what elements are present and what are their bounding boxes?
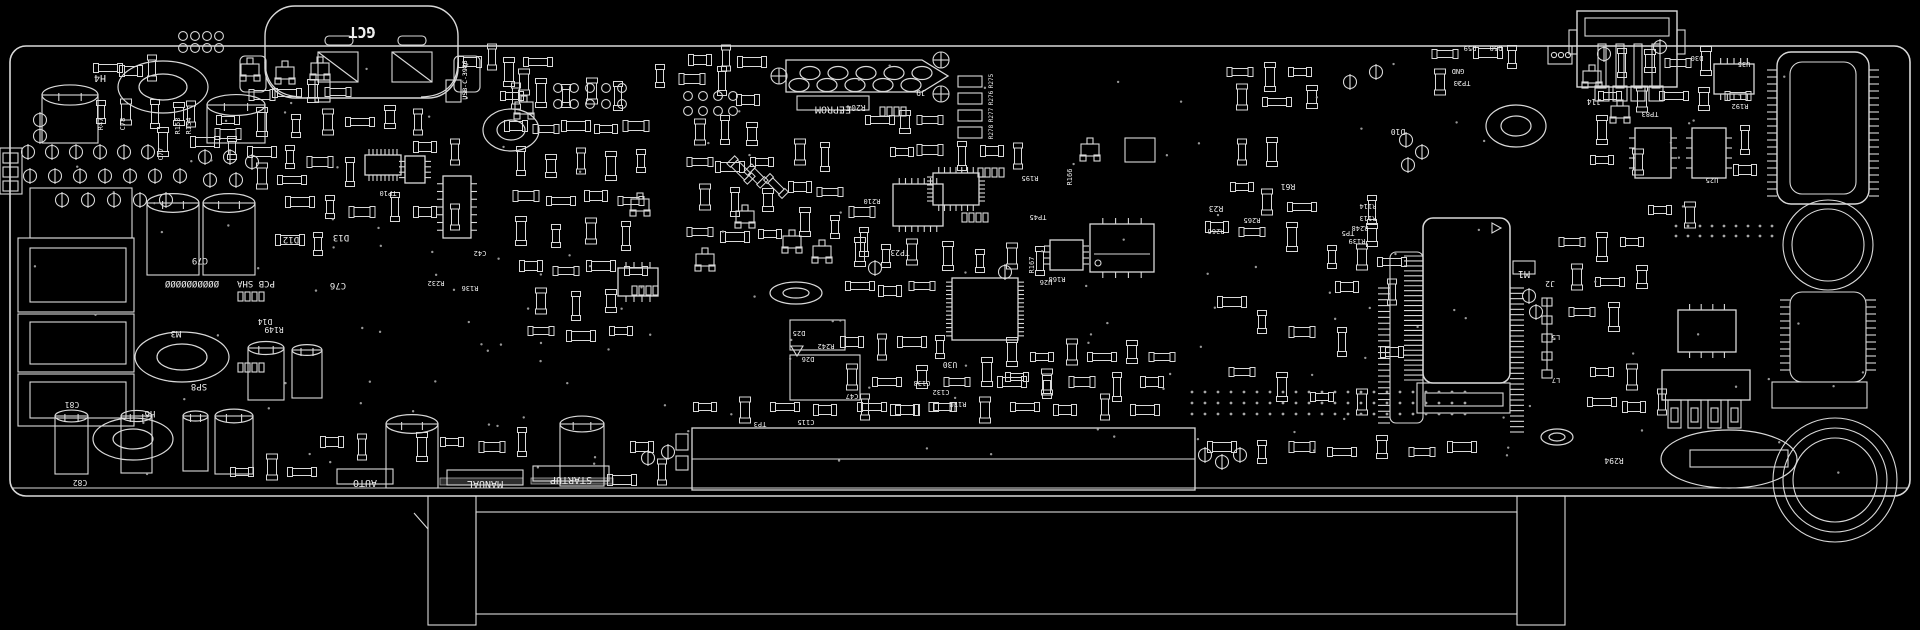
chip-pad — [1617, 92, 1622, 101]
chip-pad — [1014, 164, 1023, 169]
chip-pad — [723, 50, 730, 66]
silkscreen-label: J14 — [1587, 97, 1602, 106]
via-dot — [1162, 388, 1164, 390]
mounting-hole-inner — [157, 344, 207, 370]
chip-pad — [741, 402, 750, 418]
chip-pad — [1042, 369, 1053, 374]
chip-pad — [1472, 442, 1477, 453]
via-dot — [1180, 100, 1182, 102]
chip-pad — [822, 189, 838, 196]
via-dot — [1329, 292, 1331, 294]
chip-pad — [1627, 364, 1638, 369]
chip-pad — [1237, 84, 1248, 89]
chip-component — [891, 405, 920, 416]
via-dot — [480, 343, 482, 345]
chip-component — [606, 152, 617, 181]
chip-component — [679, 74, 705, 85]
mounting-hole-outer — [93, 418, 173, 460]
via-dot — [1321, 391, 1324, 394]
via-dot — [730, 413, 732, 415]
chip-pad — [769, 158, 774, 167]
via-dot — [361, 327, 363, 329]
chip-pad — [1430, 448, 1435, 457]
via-dot — [722, 230, 724, 232]
chip-component — [846, 282, 875, 291]
sot23-pad — [702, 248, 708, 254]
chip-pad — [719, 72, 726, 91]
silkscreen-label-vertical: C78 — [119, 118, 127, 131]
via-dot — [594, 456, 596, 458]
chip-pad — [346, 182, 355, 187]
chip-component — [747, 123, 758, 146]
chip-pad — [898, 337, 903, 348]
chip-component — [898, 337, 927, 348]
chip-pad — [696, 124, 705, 140]
header-pin — [729, 107, 738, 116]
chip-pad — [253, 148, 272, 157]
silkscreen-label: GCT — [348, 23, 375, 41]
silkscreen-label-vertical: R166 — [1066, 169, 1074, 186]
chip-pad — [1170, 353, 1175, 362]
via-dot — [1692, 119, 1694, 121]
silkscreen-label: R61 — [1281, 182, 1296, 191]
chip-pad — [831, 216, 840, 221]
chip-pad — [152, 105, 159, 124]
via-dot — [1269, 413, 1272, 416]
chip-pad — [795, 160, 806, 165]
chip-component — [1596, 278, 1625, 287]
chip-pad — [606, 290, 617, 295]
silkscreen-label: D26 — [802, 355, 815, 363]
chip-pad — [638, 155, 645, 168]
chip-pad — [744, 173, 755, 184]
connector-block — [30, 382, 126, 418]
chip-pad — [536, 309, 547, 314]
silkscreen-label: SP8 — [191, 381, 207, 391]
chip-pad — [896, 149, 909, 156]
chip-pad — [814, 405, 819, 416]
chip-pad — [1623, 402, 1628, 413]
chip-component — [759, 230, 782, 239]
via-dot — [1269, 402, 1272, 405]
chip-pad — [1610, 308, 1619, 327]
chip-component — [817, 188, 843, 197]
chip-pad — [883, 250, 890, 263]
via-dot — [1269, 391, 1272, 394]
via-dot — [1369, 307, 1371, 309]
chip-pad — [1329, 251, 1336, 264]
via-dot — [379, 331, 381, 333]
chip-component — [346, 118, 375, 127]
chip-pad — [1591, 156, 1596, 165]
pad-group-pad — [653, 286, 658, 295]
chip-pad — [513, 191, 518, 202]
header-pin — [684, 92, 693, 101]
resistor-outline — [958, 110, 982, 121]
via-dot — [1282, 402, 1285, 405]
usb-c-latch-line — [392, 52, 432, 82]
chip-pad — [716, 162, 721, 173]
chip-pad — [900, 129, 911, 134]
chip-pad — [310, 197, 315, 208]
via-dot — [1334, 402, 1337, 405]
chip-pad — [547, 197, 552, 206]
chip-pad — [848, 369, 857, 385]
chip-pad — [572, 316, 581, 321]
chip-pad — [742, 96, 755, 105]
bracket-notch — [414, 513, 428, 529]
connector-block — [18, 238, 134, 312]
chip-component — [520, 261, 543, 272]
via-dot — [190, 160, 192, 162]
via-dot — [1832, 385, 1834, 387]
aux-3pin-pad — [1558, 52, 1563, 57]
via-dot — [502, 146, 504, 148]
chip-pad — [268, 459, 277, 475]
chip-pad — [516, 241, 527, 246]
silkscreen-label: R114 — [1360, 202, 1377, 210]
chip-pad — [759, 230, 764, 239]
mounting-bracket-leg — [428, 496, 476, 625]
chip-pad — [1437, 51, 1453, 58]
chip-component — [695, 119, 706, 145]
chip-pad — [1312, 203, 1317, 212]
chip-pad — [854, 208, 870, 217]
chip-pad — [1259, 316, 1266, 329]
chip-pad — [744, 164, 755, 175]
chip-pad — [1146, 378, 1159, 387]
chip-component — [917, 145, 943, 156]
chip-pad — [286, 164, 295, 169]
chip-pad — [591, 331, 596, 342]
via-dot — [1687, 235, 1690, 238]
chip-component — [385, 106, 396, 129]
chip-pad — [1277, 373, 1288, 378]
chip-pad — [726, 233, 745, 242]
chip-pad — [577, 148, 586, 153]
chip-pad — [656, 83, 665, 88]
silkscreen-label: M3 — [171, 328, 182, 338]
chip-pad — [1739, 166, 1752, 175]
via-dot — [1316, 96, 1318, 98]
chip-pad — [1626, 239, 1639, 246]
chip-pad — [1263, 98, 1268, 107]
chip-pad — [771, 403, 776, 412]
via-dot — [1360, 402, 1363, 405]
chip-pad — [292, 133, 301, 138]
header-pin — [203, 44, 212, 53]
via-dot — [94, 314, 96, 316]
power-package-leg-slot — [1671, 408, 1678, 422]
silkscreen-label: R23 — [1209, 204, 1224, 213]
chip-pad — [312, 158, 328, 167]
chip-pad — [699, 404, 712, 411]
chip-pad — [1414, 449, 1430, 456]
chip-component — [1113, 373, 1122, 402]
chip-pad — [386, 111, 395, 124]
chip-component — [1448, 442, 1477, 453]
chip-component — [721, 116, 730, 145]
via-dot — [227, 224, 229, 226]
chip-pad — [546, 155, 557, 160]
silkscreen-label: TP3 — [754, 420, 767, 428]
chip-pad — [846, 338, 859, 347]
chip-component — [751, 158, 774, 167]
chip-pad — [692, 229, 708, 236]
module-lower-slab — [1417, 383, 1510, 413]
chip-component — [1597, 233, 1608, 262]
chip-pad — [849, 207, 854, 218]
chip-pad — [976, 250, 985, 255]
chip-component — [1597, 116, 1608, 145]
chip-pad — [687, 158, 692, 167]
chip-pad — [1381, 347, 1386, 358]
chip-pad — [795, 403, 800, 412]
power-package-leg — [1728, 400, 1741, 428]
chip-component — [1289, 327, 1315, 338]
pad-group-pad — [252, 363, 257, 372]
via-dot — [1347, 391, 1350, 394]
chip-pad — [1388, 279, 1397, 284]
via-dot — [1386, 413, 1389, 416]
via-dot — [434, 380, 436, 382]
chip-pad — [1329, 393, 1334, 402]
chip-pad — [1685, 202, 1696, 207]
connector-block — [1125, 138, 1155, 162]
chip-component — [441, 438, 464, 447]
via-dot — [1464, 413, 1467, 416]
chip-pad — [1239, 144, 1246, 160]
chip-pad — [1574, 309, 1590, 316]
chip-pad — [573, 297, 580, 316]
sot23-body — [696, 254, 714, 266]
chip-pad — [286, 197, 291, 208]
toroid-bar — [1690, 450, 1788, 467]
mounting-hole-inner — [139, 74, 187, 100]
chip-pad — [1388, 300, 1397, 305]
via-dot — [1204, 413, 1207, 416]
chip-component — [417, 433, 428, 462]
chip-pad — [861, 394, 870, 399]
chip-pad — [391, 217, 400, 222]
chip-component — [414, 207, 437, 218]
via-dot — [540, 342, 542, 344]
via-dot — [1206, 273, 1208, 275]
via-dot — [1771, 235, 1774, 238]
chip-component — [980, 397, 991, 423]
via-dot — [1392, 63, 1394, 65]
silkscreen-label: R136 — [462, 284, 479, 292]
chip-pad — [1597, 140, 1608, 145]
via-dot — [1862, 371, 1864, 373]
chip-pad — [326, 196, 335, 201]
aux-3pin-pad — [1551, 52, 1556, 57]
transformer-core-circle-inner — [1792, 209, 1864, 281]
chip-component — [909, 282, 935, 291]
via-dot — [1529, 405, 1531, 407]
pad-group-pad — [887, 107, 892, 116]
chip-pad — [196, 138, 215, 147]
chip-component — [1265, 63, 1276, 92]
chip-pad — [324, 114, 333, 130]
silkscreen-label-vertical: USB-C-3986 — [461, 60, 469, 99]
dsub-pin-oval — [856, 67, 876, 80]
chip-pad — [907, 239, 918, 244]
chip-pad — [917, 116, 922, 125]
chip-pad — [548, 58, 553, 67]
via-dot — [1198, 142, 1200, 144]
via-dot — [369, 380, 371, 382]
chip-component — [610, 327, 633, 336]
chip-pad — [323, 109, 334, 114]
via-dot — [1295, 402, 1298, 405]
chip-pad — [1645, 68, 1656, 73]
chip-component — [151, 100, 160, 129]
chip-pad — [1238, 160, 1247, 165]
chip-pad — [489, 49, 496, 65]
chip-pad — [795, 139, 806, 144]
chip-pad — [516, 217, 527, 222]
chip-pad — [1354, 282, 1359, 293]
sot23-body — [1081, 144, 1099, 156]
via-dot — [377, 227, 379, 229]
chip-pad — [1597, 257, 1608, 262]
chip-pad — [679, 74, 684, 85]
via-dot — [1106, 322, 1108, 324]
via-dot — [1360, 391, 1363, 394]
chip-component — [325, 88, 351, 97]
chip-pad — [800, 208, 811, 213]
via-dot — [888, 64, 890, 66]
chip-pad — [1628, 369, 1637, 385]
via-dot — [1682, 205, 1684, 207]
chip-pad — [1267, 162, 1278, 167]
chip-pad — [1686, 207, 1695, 223]
via-dot — [268, 407, 270, 409]
chip-component — [687, 158, 713, 167]
chip-pad — [692, 159, 708, 166]
via-dot — [1670, 142, 1672, 144]
pad-group-pad — [259, 363, 264, 372]
mounting-hole-outer — [118, 61, 208, 113]
chip-component — [1127, 341, 1138, 364]
chip-pad — [552, 198, 571, 205]
chip-pad — [1277, 397, 1288, 402]
chip-pad — [1259, 446, 1266, 459]
dsub-pin-oval — [884, 67, 904, 80]
chip-pad — [1572, 264, 1583, 269]
chip-component — [1289, 68, 1312, 77]
chip-component — [1011, 403, 1040, 412]
via-dot — [1360, 413, 1363, 416]
chip-pad — [882, 245, 891, 250]
silkscreen-label-vertical: R277 — [988, 107, 995, 122]
pad-group-pad — [245, 292, 250, 301]
chip-pad — [982, 358, 993, 363]
via-dot — [1343, 418, 1345, 420]
chip-pad — [1453, 50, 1458, 59]
chip-pad — [879, 286, 884, 297]
chip-pad — [1639, 238, 1644, 247]
chip-pad — [860, 228, 869, 233]
chip-pad — [631, 442, 636, 453]
chip-component — [1381, 347, 1404, 358]
chip-pad — [1258, 441, 1267, 446]
pad-group-pad — [880, 107, 885, 116]
chip-pad — [878, 379, 897, 386]
via-dot — [990, 453, 992, 455]
chip-pad — [623, 227, 630, 246]
via-dot — [1738, 93, 1740, 95]
silkscreen-label: TP45 — [1030, 213, 1047, 221]
chip-pad — [484, 443, 500, 452]
chip-pad — [689, 55, 694, 66]
chip-pad — [694, 56, 707, 65]
chip-pad — [1612, 398, 1617, 407]
chip-pad — [1287, 247, 1298, 252]
chip-pad — [1067, 360, 1078, 365]
chip-component — [981, 146, 1004, 157]
chip-pad — [1267, 138, 1278, 143]
chip-component — [1289, 442, 1315, 453]
chip-pad — [1011, 403, 1016, 412]
chip-component — [891, 148, 914, 157]
pad-group-pad — [238, 363, 243, 372]
chip-pad — [1113, 373, 1122, 378]
chip-pad — [937, 341, 944, 354]
chip-pad — [1238, 89, 1247, 105]
chip-pad — [1701, 47, 1712, 52]
chip-component — [1263, 98, 1292, 107]
sot23-body — [311, 63, 329, 75]
silkscreen-label: C132 — [933, 388, 950, 396]
silkscreen-label: R294 — [1604, 456, 1623, 465]
chip-pad — [1597, 233, 1608, 238]
via-dot — [984, 87, 986, 89]
chip-pad — [99, 65, 118, 72]
via-dot — [1711, 235, 1714, 238]
via-dot — [1334, 318, 1336, 320]
via-dot — [113, 191, 115, 193]
silkscreen-label: TP23 — [890, 248, 909, 257]
chip-pad — [1752, 165, 1757, 176]
chip-component — [976, 250, 985, 273]
chip-component — [546, 155, 557, 178]
via-dot — [1360, 127, 1362, 129]
chip-pad — [1289, 442, 1294, 453]
chip-pad — [606, 176, 617, 181]
via-dot — [217, 334, 219, 336]
via-dot — [1747, 235, 1750, 238]
via-dot — [790, 339, 792, 341]
chip-component — [873, 378, 902, 387]
chip-pad — [721, 140, 730, 145]
chip-pad — [1088, 353, 1093, 362]
chip-pad — [563, 90, 570, 103]
chip-pad — [622, 246, 631, 251]
chip-pad — [346, 88, 351, 97]
chip-pad — [94, 64, 99, 73]
ic-body — [1678, 310, 1736, 352]
via-dot — [1451, 391, 1454, 394]
via-dot — [954, 397, 956, 399]
via-dot — [1399, 402, 1402, 405]
speaker-circle — [1773, 418, 1897, 542]
via-dot — [1464, 391, 1467, 394]
chip-pad — [1358, 394, 1367, 410]
chip-pad — [1609, 156, 1614, 165]
chip-pad — [731, 212, 740, 217]
